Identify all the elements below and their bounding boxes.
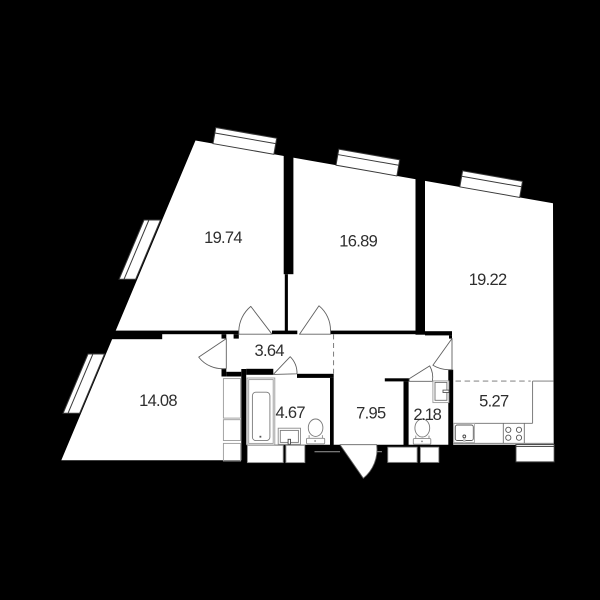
- svg-text:19.22: 19.22: [469, 271, 507, 289]
- svg-text:5.27: 5.27: [479, 393, 509, 411]
- svg-text:4.67: 4.67: [276, 404, 306, 422]
- svg-text:2.18: 2.18: [413, 406, 441, 424]
- svg-text:3.64: 3.64: [255, 342, 285, 360]
- svg-text:14.08: 14.08: [139, 392, 177, 410]
- svg-text:7.95: 7.95: [356, 405, 386, 423]
- svg-text:16.89: 16.89: [339, 233, 377, 251]
- svg-text:19.74: 19.74: [204, 229, 242, 247]
